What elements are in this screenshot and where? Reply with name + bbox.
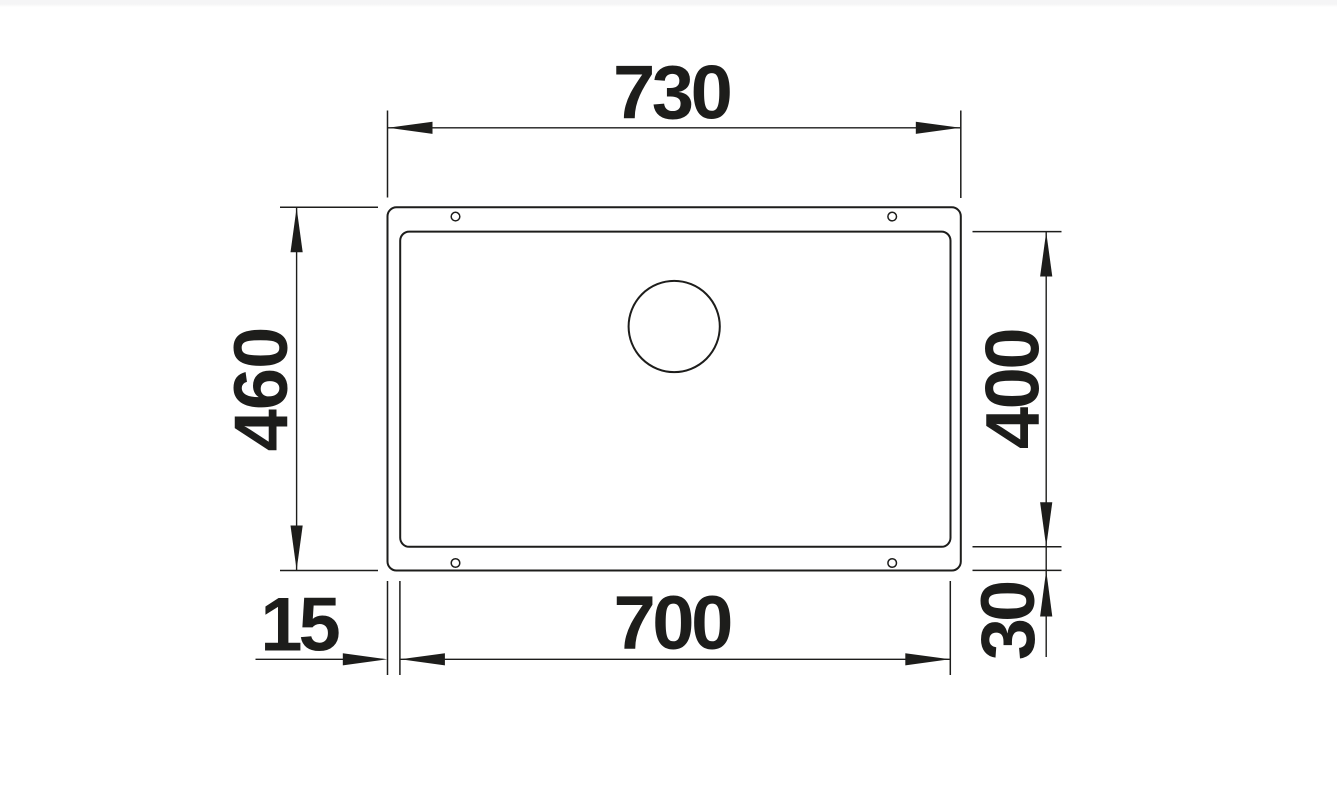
svg-text:15: 15: [260, 582, 339, 667]
svg-text:700: 700: [614, 581, 732, 666]
svg-text:730: 730: [613, 51, 731, 136]
svg-text:460: 460: [219, 328, 304, 452]
svg-text:30: 30: [966, 582, 1051, 660]
svg-text:400: 400: [971, 330, 1056, 450]
